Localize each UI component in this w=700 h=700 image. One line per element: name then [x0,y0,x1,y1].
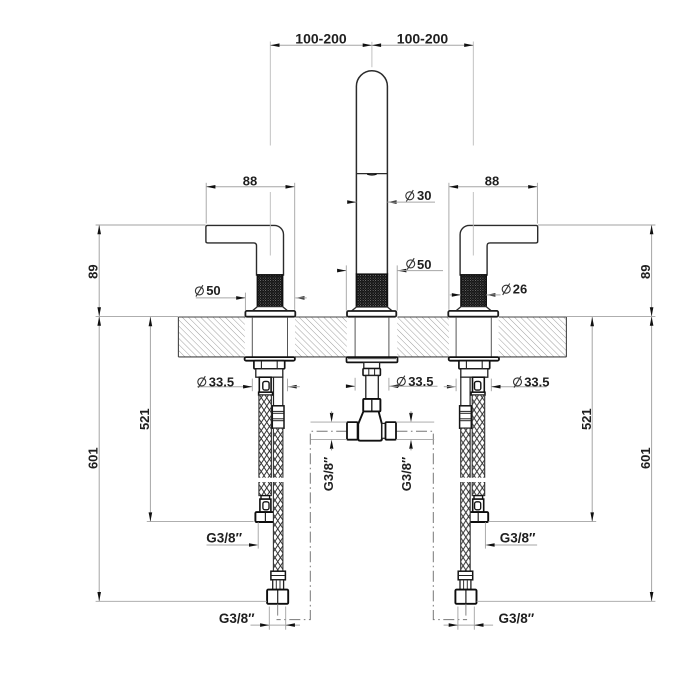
svg-text:G3/8″: G3/8″ [321,457,336,491]
svg-text:G3/8″: G3/8″ [499,611,535,626]
svg-text:30: 30 [417,188,431,203]
svg-text:50: 50 [206,283,220,298]
svg-text:G3/8″: G3/8″ [399,457,414,491]
svg-text:G3/8″: G3/8″ [219,611,255,626]
svg-text:G3/8″: G3/8″ [500,530,536,545]
svg-text:521: 521 [579,408,594,430]
svg-text:89: 89 [638,265,653,279]
svg-text:521: 521 [137,408,152,430]
svg-text:33.5: 33.5 [524,374,549,389]
svg-text:33.5: 33.5 [209,374,234,389]
svg-text:G3/8″: G3/8″ [206,530,242,545]
svg-text:601: 601 [85,447,100,469]
svg-text:88: 88 [243,173,257,188]
svg-text:50: 50 [417,257,431,272]
svg-text:100-200: 100-200 [397,31,449,47]
svg-text:100-200: 100-200 [295,31,347,47]
svg-text:33.5: 33.5 [408,374,433,389]
svg-text:601: 601 [638,447,653,469]
svg-text:89: 89 [86,264,101,278]
svg-text:26: 26 [513,282,527,297]
svg-text:88: 88 [485,173,499,188]
